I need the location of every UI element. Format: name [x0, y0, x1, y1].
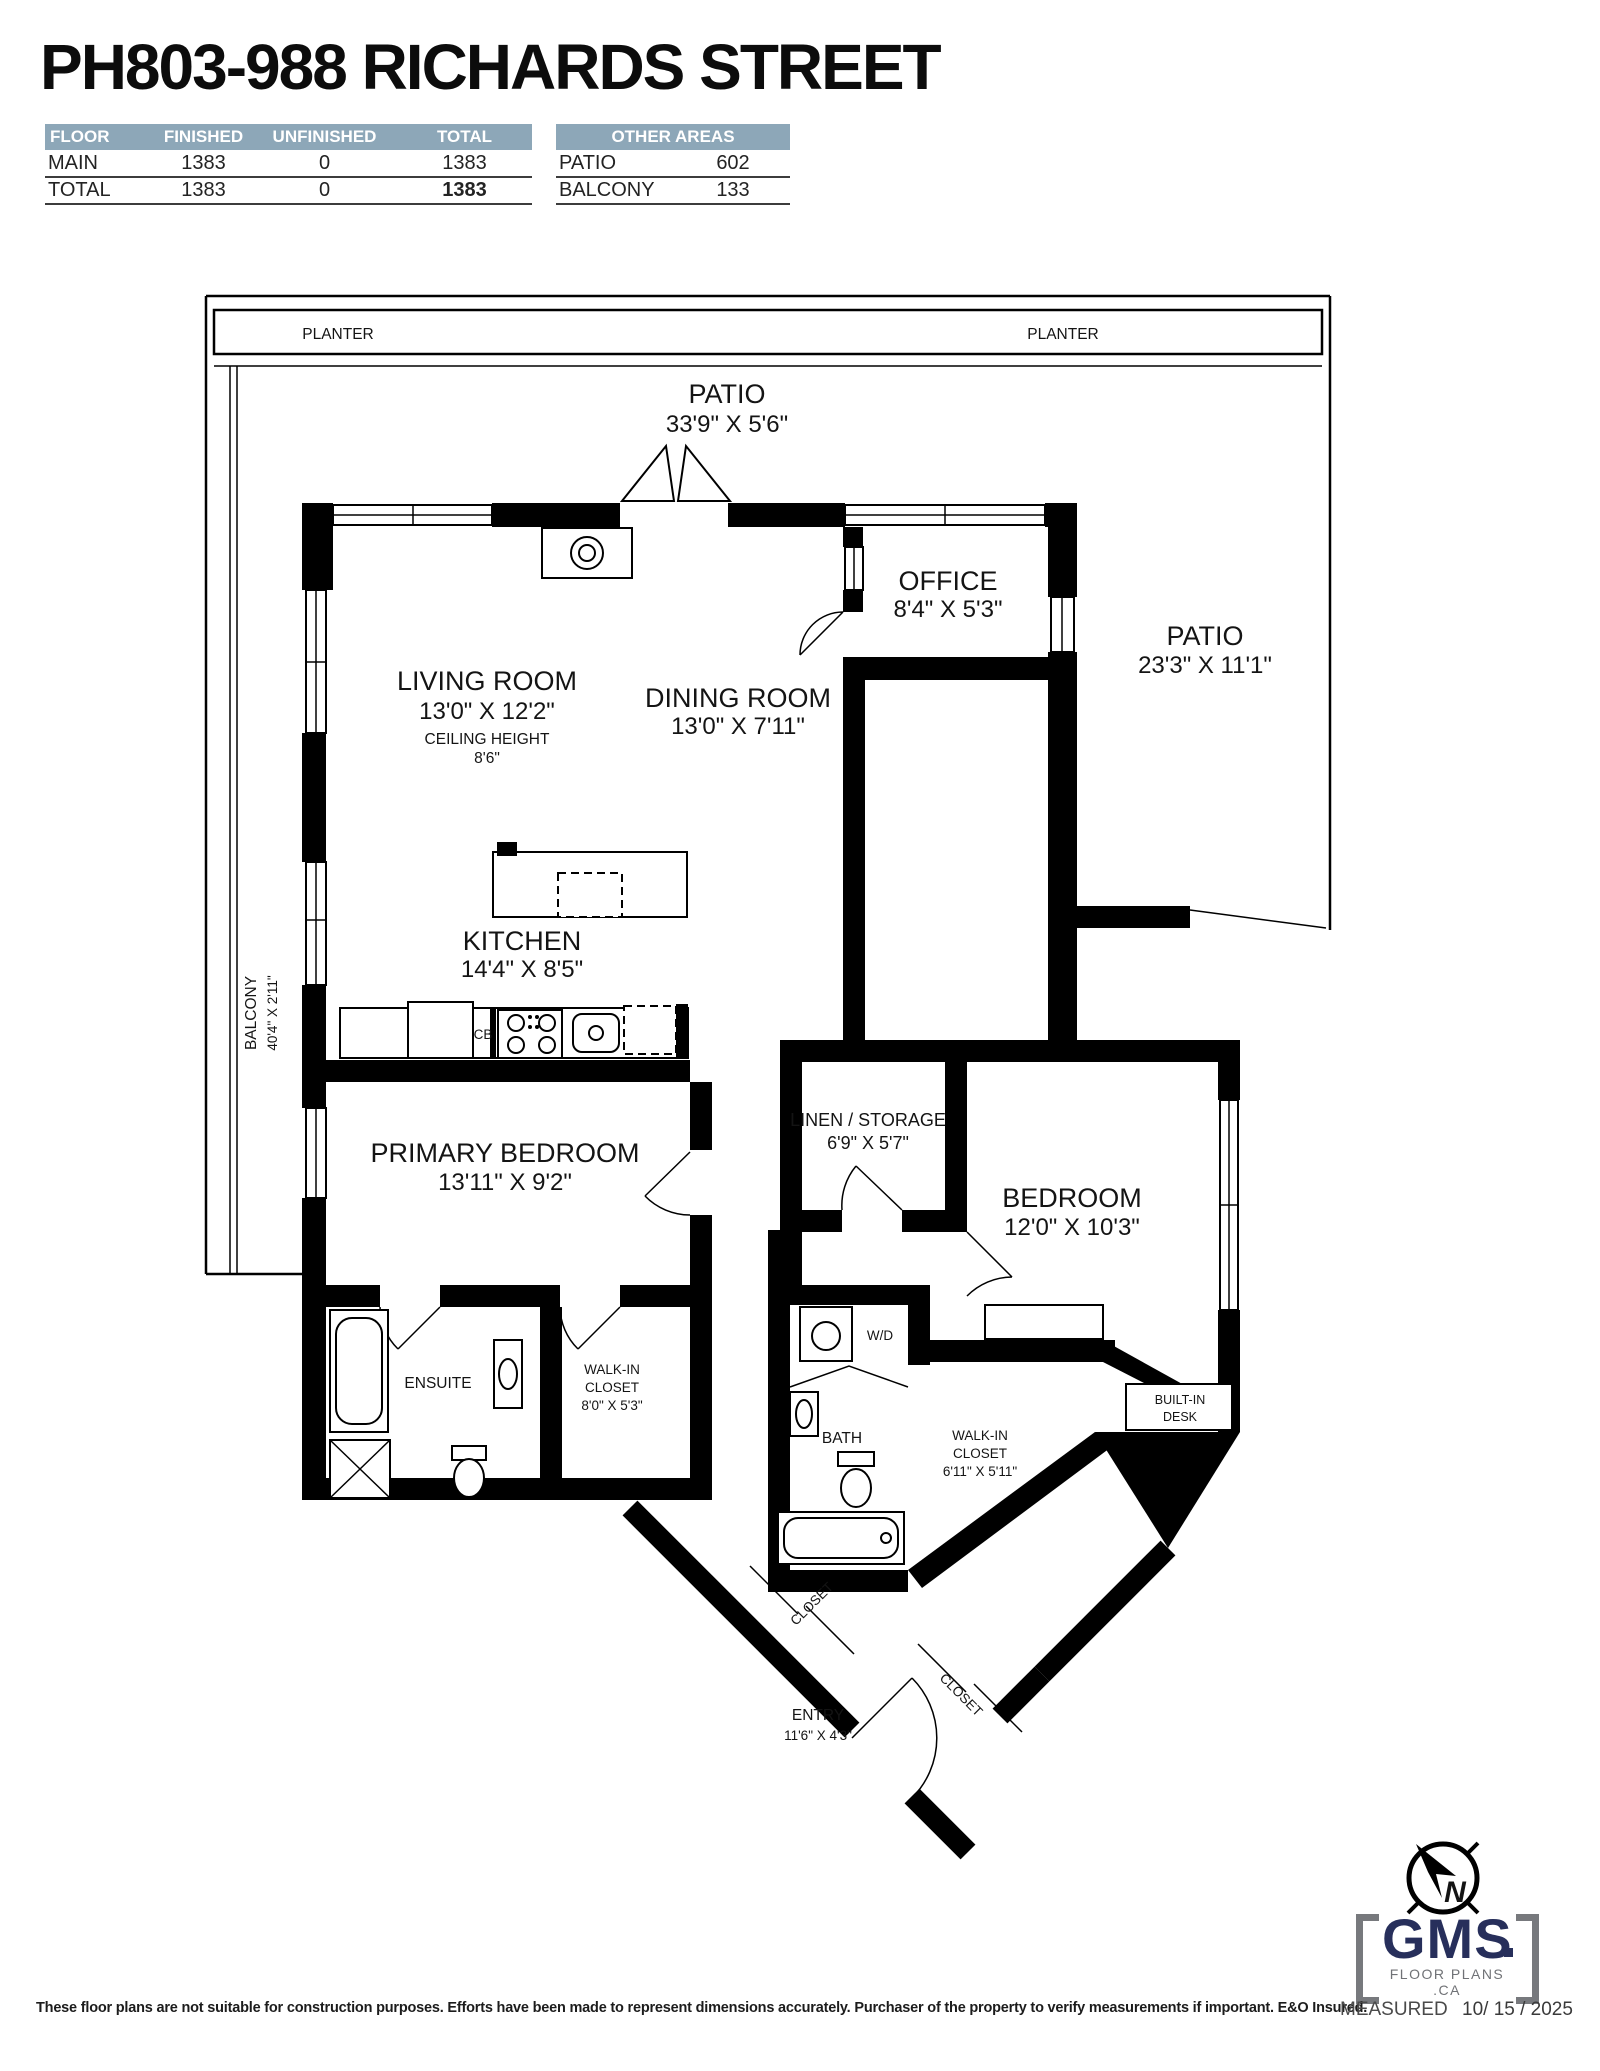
label-kitchen: KITCHEN [463, 926, 582, 956]
label-dining-room: DINING ROOM [645, 683, 831, 713]
logo-brand: GMS [1382, 1906, 1512, 1971]
label-entry: ENTRY [792, 1707, 844, 1724]
dims-balcony: 40'4" X 2'11" [265, 975, 280, 1050]
label-living-room: LIVING ROOM [397, 666, 577, 696]
dims-patio-right: 23'3" X 11'1" [1138, 652, 1272, 679]
label-patio-top: PATIO [688, 379, 765, 409]
compass-north-letter: N [1444, 1876, 1467, 1909]
dishwasher-icon [558, 873, 622, 917]
dims-kitchen: 14'4" X 8'5" [461, 956, 583, 983]
dims-dining-room: 13'0" X 7'11" [671, 713, 805, 740]
exterior-boundary [206, 296, 1330, 1274]
logo-dot [1504, 1948, 1513, 1957]
toilet-icon [838, 1452, 874, 1466]
floor-plan-page: PH803-988 RICHARDS STREET FLOOR FINISHED… [0, 0, 1600, 2071]
dims-wic1: 8'0" X 5'3" [581, 1398, 642, 1413]
label-cb: CB [474, 1027, 493, 1042]
dims-office: 8'4" X 5'3" [894, 596, 1003, 623]
label-planter-right: PLANTER [1027, 326, 1099, 343]
label-wd: W/D [867, 1328, 893, 1343]
measured-date: 10/ 15 / 2025 [1462, 1999, 1573, 2021]
label-wic1-line2: CLOSET [585, 1380, 639, 1395]
dims-patio-top: 33'9" X 5'6" [666, 411, 788, 438]
label-desk-line1: BUILT-IN [1155, 1393, 1205, 1407]
label-desk-line2: DESK [1163, 1410, 1198, 1424]
label-ceiling-height: CEILING HEIGHT [425, 731, 550, 748]
dims-entry: 11'6" X 4'3" [784, 1728, 852, 1743]
label-wic1-line1: WALK-IN [584, 1362, 640, 1377]
dims-linen: 6'9" X 5'7" [827, 1133, 909, 1153]
label-wic2-line1: WALK-IN [952, 1428, 1008, 1443]
label-wic2-line2: CLOSET [953, 1446, 1007, 1461]
dims-wic2: 6'11" X 5'11" [943, 1464, 1017, 1479]
label-patio-right: PATIO [1166, 621, 1243, 651]
label-ensuite: ENSUITE [404, 1375, 471, 1392]
fridge-icon [408, 1002, 473, 1058]
label-bedroom: BEDROOM [1002, 1183, 1142, 1213]
footer-disclaimer: These floor plans are not suitable for c… [36, 2000, 1367, 2016]
value-ceiling-height: 8'6" [474, 750, 500, 767]
dresser-icon [985, 1305, 1103, 1339]
label-primary-bedroom: PRIMARY BEDROOM [370, 1138, 639, 1168]
label-closet-2: CLOSET [937, 1670, 986, 1719]
dims-primary-bedroom: 13'11" X 9'2" [438, 1169, 572, 1196]
dims-bedroom: 12'0" X 10'3" [1004, 1214, 1140, 1241]
label-office: OFFICE [899, 566, 998, 596]
logo-tagline: FLOOR PLANS .CA [1374, 1966, 1520, 1998]
toilet-icon [452, 1446, 486, 1460]
floor-plan-drawing: PLANTER PLANTER PATIO 33'9" X 5'6" LIVIN… [0, 0, 1600, 2071]
measured-label: MEASURED [1340, 1999, 1448, 2021]
label-linen: LINEN / STORAGE [790, 1110, 946, 1130]
dims-living-room: 13'0" X 12'2" [419, 698, 555, 725]
compass-icon: N [1408, 1843, 1478, 1913]
label-planter-left: PLANTER [302, 326, 374, 343]
label-balcony: BALCONY [243, 976, 260, 1050]
label-bath: BATH [822, 1430, 862, 1447]
